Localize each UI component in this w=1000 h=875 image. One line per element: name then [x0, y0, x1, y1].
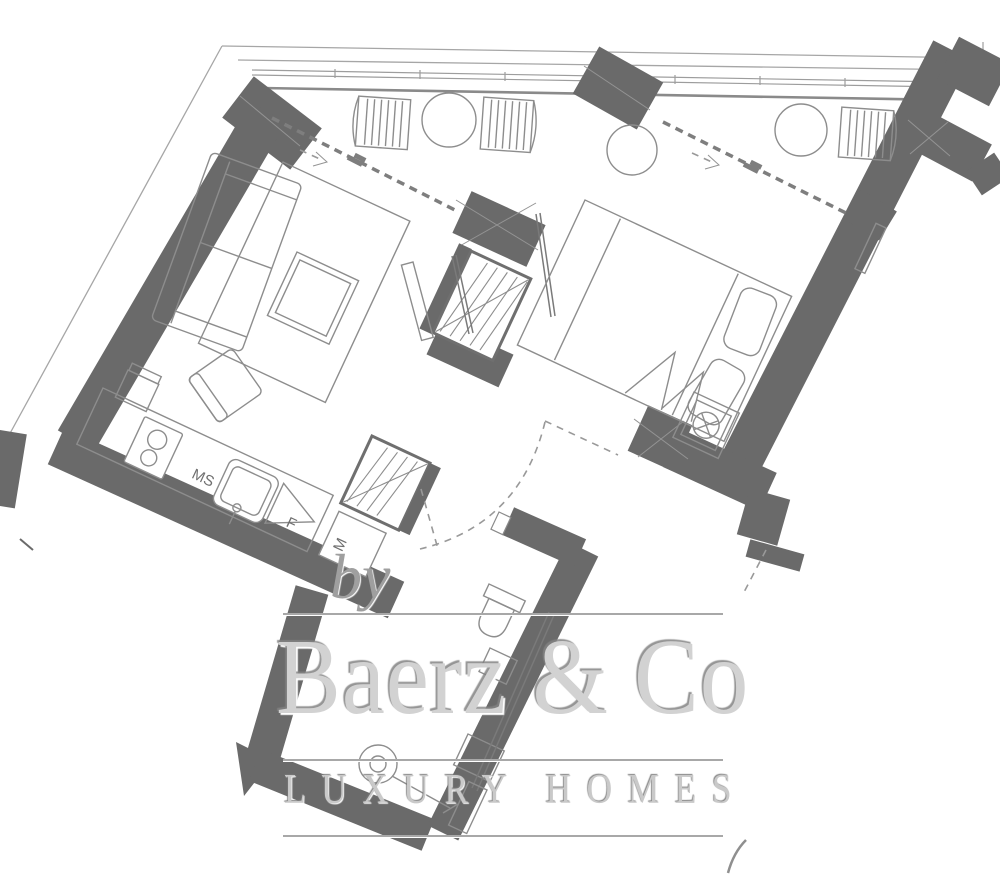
door-handle-icon [743, 158, 763, 175]
watermark-fragment [728, 840, 746, 873]
watermark-divider [283, 759, 723, 761]
balcony-table [422, 93, 476, 147]
watermark-divider [283, 835, 723, 837]
watermark-divider [283, 613, 723, 615]
faucet-arm [392, 776, 450, 808]
slide-arrow-icon [705, 155, 719, 169]
slide-arrow-icon [313, 152, 327, 166]
label-f: F [284, 514, 299, 533]
coffee-table [267, 252, 358, 344]
shower-glass [472, 612, 549, 788]
bedside-table [607, 125, 657, 175]
floor-plan-svg: MS F M [0, 0, 1000, 875]
pillow [721, 285, 779, 358]
sliding-door-living [272, 118, 455, 210]
armchair [188, 348, 263, 423]
balcony-chair [351, 96, 410, 150]
floor-plan-page: MS F M [0, 0, 1000, 875]
living-room [151, 152, 433, 423]
basin [359, 745, 397, 783]
balcony-table [775, 104, 827, 156]
sliding-door-bedroom [663, 122, 848, 214]
balcony-chair [480, 97, 537, 153]
